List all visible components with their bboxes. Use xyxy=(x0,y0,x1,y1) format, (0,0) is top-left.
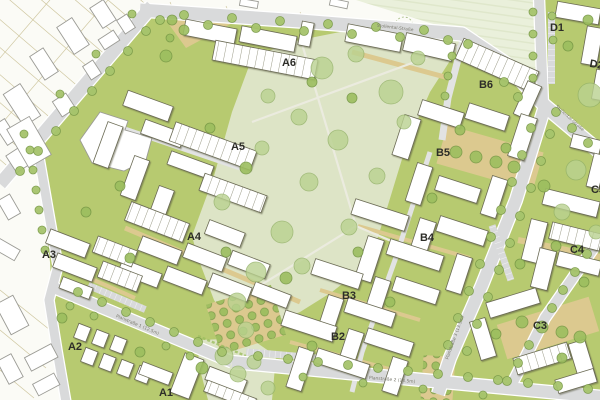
block-label-b5: B5 xyxy=(436,147,450,159)
block-label-a3: A3 xyxy=(42,249,56,261)
block-label-b4: B4 xyxy=(420,232,435,244)
block-label-d1: D1 xyxy=(550,22,564,34)
block-label-b3: B3 xyxy=(342,290,356,302)
block-label-a5: A5 xyxy=(231,141,245,153)
block-label-c5: C5 xyxy=(591,184,600,196)
block-label-b2: B2 xyxy=(331,331,345,343)
block-label-c4: C4 xyxy=(570,244,585,256)
block-label-c3: C3 xyxy=(533,320,547,332)
block-label-b6: B6 xyxy=(479,79,493,91)
block-label-a1: A1 xyxy=(159,387,173,399)
block-label-a2: A2 xyxy=(68,341,82,353)
block-label-a6: A6 xyxy=(282,57,296,69)
site-plan-map: Stollental-Straße Stollental-Straße Plan… xyxy=(0,0,600,400)
block-label-a4: A4 xyxy=(187,231,202,243)
